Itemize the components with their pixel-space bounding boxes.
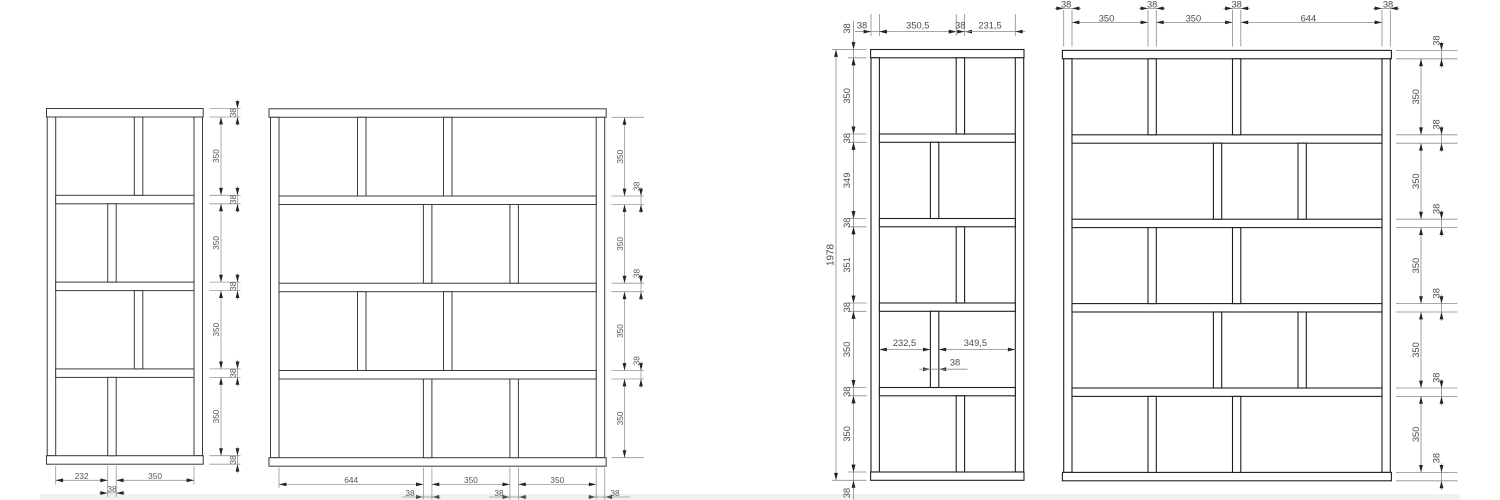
svg-text:38: 38 <box>228 108 238 118</box>
svg-text:350: 350 <box>1411 258 1421 274</box>
svg-text:350: 350 <box>842 88 852 104</box>
svg-text:38: 38 <box>228 281 238 291</box>
svg-text:349: 349 <box>842 173 852 189</box>
svg-text:350: 350 <box>148 471 162 481</box>
svg-text:350: 350 <box>550 475 564 485</box>
svg-text:38: 38 <box>1232 0 1242 10</box>
svg-text:350: 350 <box>1411 427 1421 443</box>
svg-text:350: 350 <box>615 411 625 425</box>
svg-text:350: 350 <box>211 409 221 423</box>
svg-text:38: 38 <box>1147 0 1157 10</box>
svg-text:644: 644 <box>344 475 358 485</box>
svg-text:38: 38 <box>228 195 238 205</box>
svg-text:38: 38 <box>632 181 642 191</box>
svg-text:38: 38 <box>405 488 415 498</box>
svg-text:38: 38 <box>857 20 867 30</box>
svg-text:350: 350 <box>211 236 221 250</box>
svg-text:350: 350 <box>211 149 221 163</box>
svg-text:38: 38 <box>842 23 852 33</box>
svg-text:350: 350 <box>842 342 852 358</box>
svg-text:38: 38 <box>107 484 117 494</box>
svg-text:38: 38 <box>632 356 642 366</box>
svg-text:38: 38 <box>1431 288 1441 298</box>
svg-text:38: 38 <box>950 357 960 367</box>
svg-text:644: 644 <box>1301 14 1317 24</box>
svg-text:38: 38 <box>842 488 852 498</box>
svg-text:38: 38 <box>955 20 965 30</box>
svg-text:38: 38 <box>1061 0 1071 10</box>
svg-text:349,5: 349,5 <box>964 338 987 348</box>
svg-text:38: 38 <box>1383 0 1393 10</box>
svg-text:350: 350 <box>1411 89 1421 105</box>
svg-text:350,5: 350,5 <box>906 20 929 30</box>
svg-text:350: 350 <box>615 237 625 251</box>
svg-text:38: 38 <box>1431 119 1441 129</box>
svg-text:350: 350 <box>1099 14 1115 24</box>
svg-text:38: 38 <box>842 387 852 397</box>
svg-text:350: 350 <box>464 475 478 485</box>
svg-text:350: 350 <box>842 426 852 442</box>
svg-text:232,5: 232,5 <box>893 338 916 348</box>
svg-text:38: 38 <box>228 455 238 465</box>
svg-text:350: 350 <box>615 149 625 163</box>
svg-text:1978: 1978 <box>825 244 836 266</box>
svg-text:350: 350 <box>1411 342 1421 358</box>
svg-text:38: 38 <box>842 133 852 143</box>
svg-text:38: 38 <box>1431 204 1441 214</box>
svg-text:38: 38 <box>494 488 504 498</box>
svg-text:38: 38 <box>842 218 852 228</box>
svg-text:350: 350 <box>615 324 625 338</box>
svg-text:38: 38 <box>610 488 620 498</box>
svg-text:38: 38 <box>1431 373 1441 383</box>
svg-text:351: 351 <box>842 257 852 273</box>
svg-text:38: 38 <box>632 269 642 279</box>
svg-text:232: 232 <box>75 471 89 481</box>
svg-text:38: 38 <box>842 302 852 312</box>
svg-text:350: 350 <box>1411 173 1421 189</box>
svg-text:38: 38 <box>1431 35 1441 45</box>
svg-text:350: 350 <box>211 322 221 336</box>
svg-text:231,5: 231,5 <box>978 20 1001 30</box>
svg-text:38: 38 <box>1431 453 1441 463</box>
svg-text:350: 350 <box>1186 14 1202 24</box>
svg-text:38: 38 <box>228 368 238 378</box>
